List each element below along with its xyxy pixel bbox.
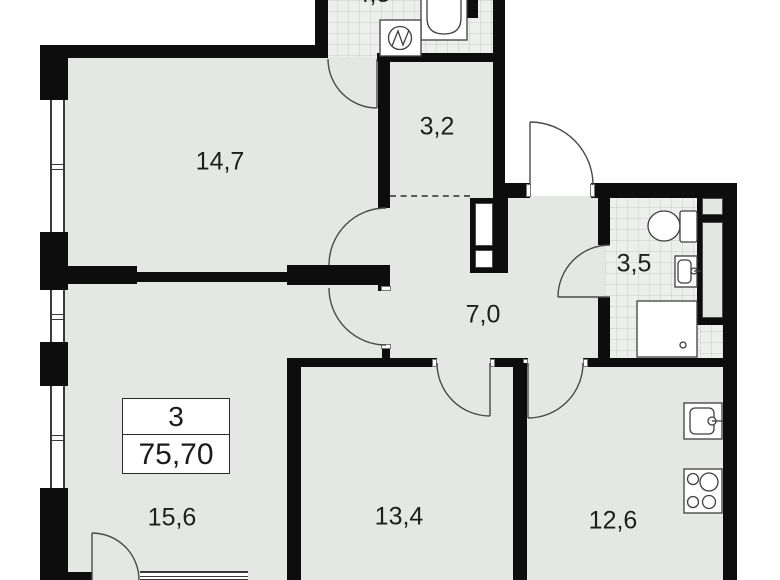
room-14-7-label: 14,7 xyxy=(196,148,245,177)
kitchen-door xyxy=(528,363,583,418)
floor-plan: 14,7 3,2 7,0 3,5 15,6 13,4 12,6 4,5 3 75… xyxy=(0,0,780,580)
top-bathroom-label: 4,5 xyxy=(356,0,391,9)
toilet-icon xyxy=(648,211,697,242)
washing-machine-icon xyxy=(380,20,421,56)
room-14-7-door xyxy=(329,208,386,265)
stove-icon xyxy=(684,469,722,513)
shower-tray-icon xyxy=(637,301,697,357)
total-area: 75,70 xyxy=(123,435,229,473)
doors-and-fixtures-layer xyxy=(0,0,780,580)
room-13-4-label: 13,4 xyxy=(375,503,424,532)
room-13-4-door xyxy=(437,363,490,416)
top-bathroom-door xyxy=(328,59,377,108)
bathroom-3-5-label: 3,5 xyxy=(617,250,652,279)
room-15-6-door xyxy=(329,288,386,345)
balcony-door xyxy=(92,533,139,580)
bathroom-3-5-door xyxy=(558,245,610,297)
entrance-door xyxy=(530,122,593,185)
apartment-info-box: 3 75,70 xyxy=(122,398,230,474)
bathtub-icon xyxy=(421,0,467,40)
hallway-7-0-label: 7,0 xyxy=(466,301,501,330)
room-3-2-label: 3,2 xyxy=(420,113,455,142)
rooms-count: 3 xyxy=(123,399,229,435)
kitchen-12-6-label: 12,6 xyxy=(589,507,638,536)
room-15-6-label: 15,6 xyxy=(148,504,197,533)
kitchen-sink-icon xyxy=(684,403,723,439)
wash-basin-icon xyxy=(675,256,701,287)
